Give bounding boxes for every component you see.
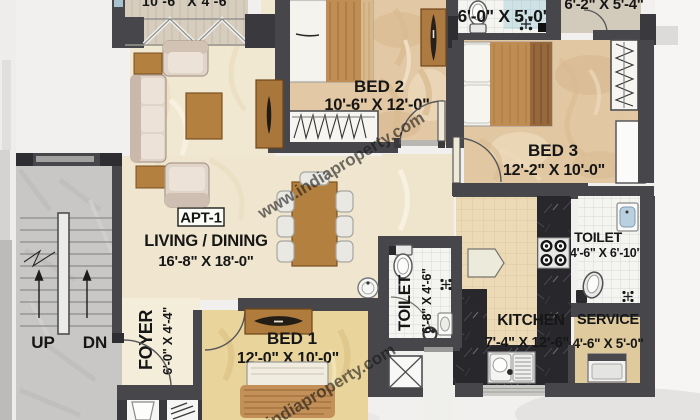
svg-text:SERVICE: SERVICE xyxy=(577,312,640,328)
svg-text:12'-2" X 10'-0": 12'-2" X 10'-0" xyxy=(503,162,605,179)
svg-text:BED 1: BED 1 xyxy=(267,329,317,348)
svg-text:6'-8" X 4'-6": 6'-8" X 4'-6" xyxy=(420,268,434,334)
svg-text:DN: DN xyxy=(83,333,108,352)
svg-text:TOILET: TOILET xyxy=(396,275,414,331)
svg-text:BED 2: BED 2 xyxy=(354,77,404,96)
svg-text:BED 3: BED 3 xyxy=(528,141,578,160)
svg-text:TOILET: TOILET xyxy=(574,229,622,245)
svg-text:APT-1: APT-1 xyxy=(180,210,222,227)
svg-text:KITCHEN: KITCHEN xyxy=(497,312,565,329)
svg-text:4'-6" X 6'-10": 4'-6" X 6'-10" xyxy=(570,246,642,260)
svg-text:6'-2" X 5'-4": 6'-2" X 5'-4" xyxy=(564,0,643,13)
svg-text:UP: UP xyxy=(31,333,55,352)
svg-text:7'-4" X 12'-6": 7'-4" X 12'-6" xyxy=(485,335,569,351)
svg-text:16'-8" X 18'-0": 16'-8" X 18'-0" xyxy=(158,253,253,270)
svg-text:6'-0" X 4'-4": 6'-0" X 4'-4" xyxy=(160,307,175,375)
svg-text:10'-6" X 4'-6": 10'-6" X 4'-6" xyxy=(142,0,234,9)
svg-text:6'-0" X 5'-0": 6'-0" X 5'-0" xyxy=(458,6,551,26)
svg-text:FOYER: FOYER xyxy=(136,310,156,370)
svg-text:LIVING / DINING: LIVING / DINING xyxy=(144,232,268,250)
svg-text:4'-6" X 5'-0": 4'-6" X 5'-0" xyxy=(573,336,644,351)
